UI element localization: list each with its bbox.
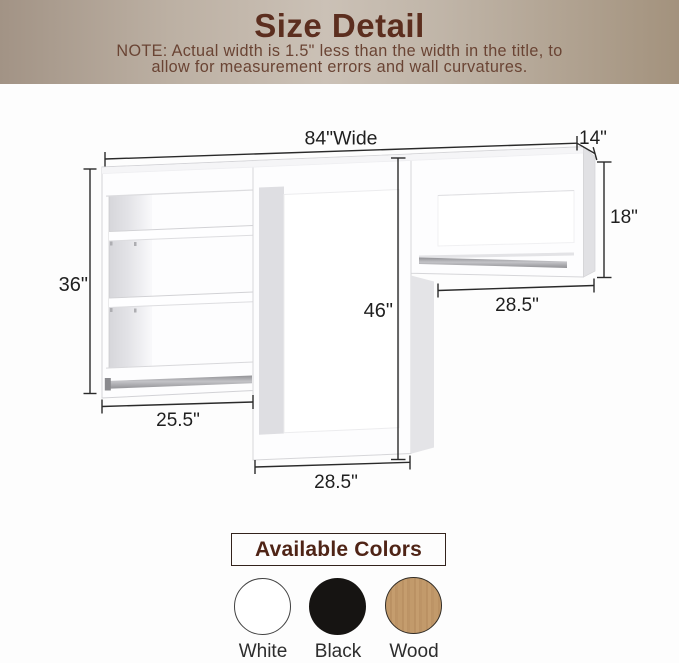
svg-text:36": 36": [59, 274, 88, 296]
svg-text:84"Wide: 84"Wide: [304, 128, 377, 150]
svg-text:18": 18": [610, 207, 638, 228]
svg-text:14": 14": [579, 128, 607, 149]
svg-text:46": 46": [364, 300, 393, 322]
svg-text:28.5": 28.5": [495, 295, 539, 316]
svg-text:25.5": 25.5": [156, 410, 200, 431]
svg-text:28.5": 28.5": [314, 472, 358, 493]
